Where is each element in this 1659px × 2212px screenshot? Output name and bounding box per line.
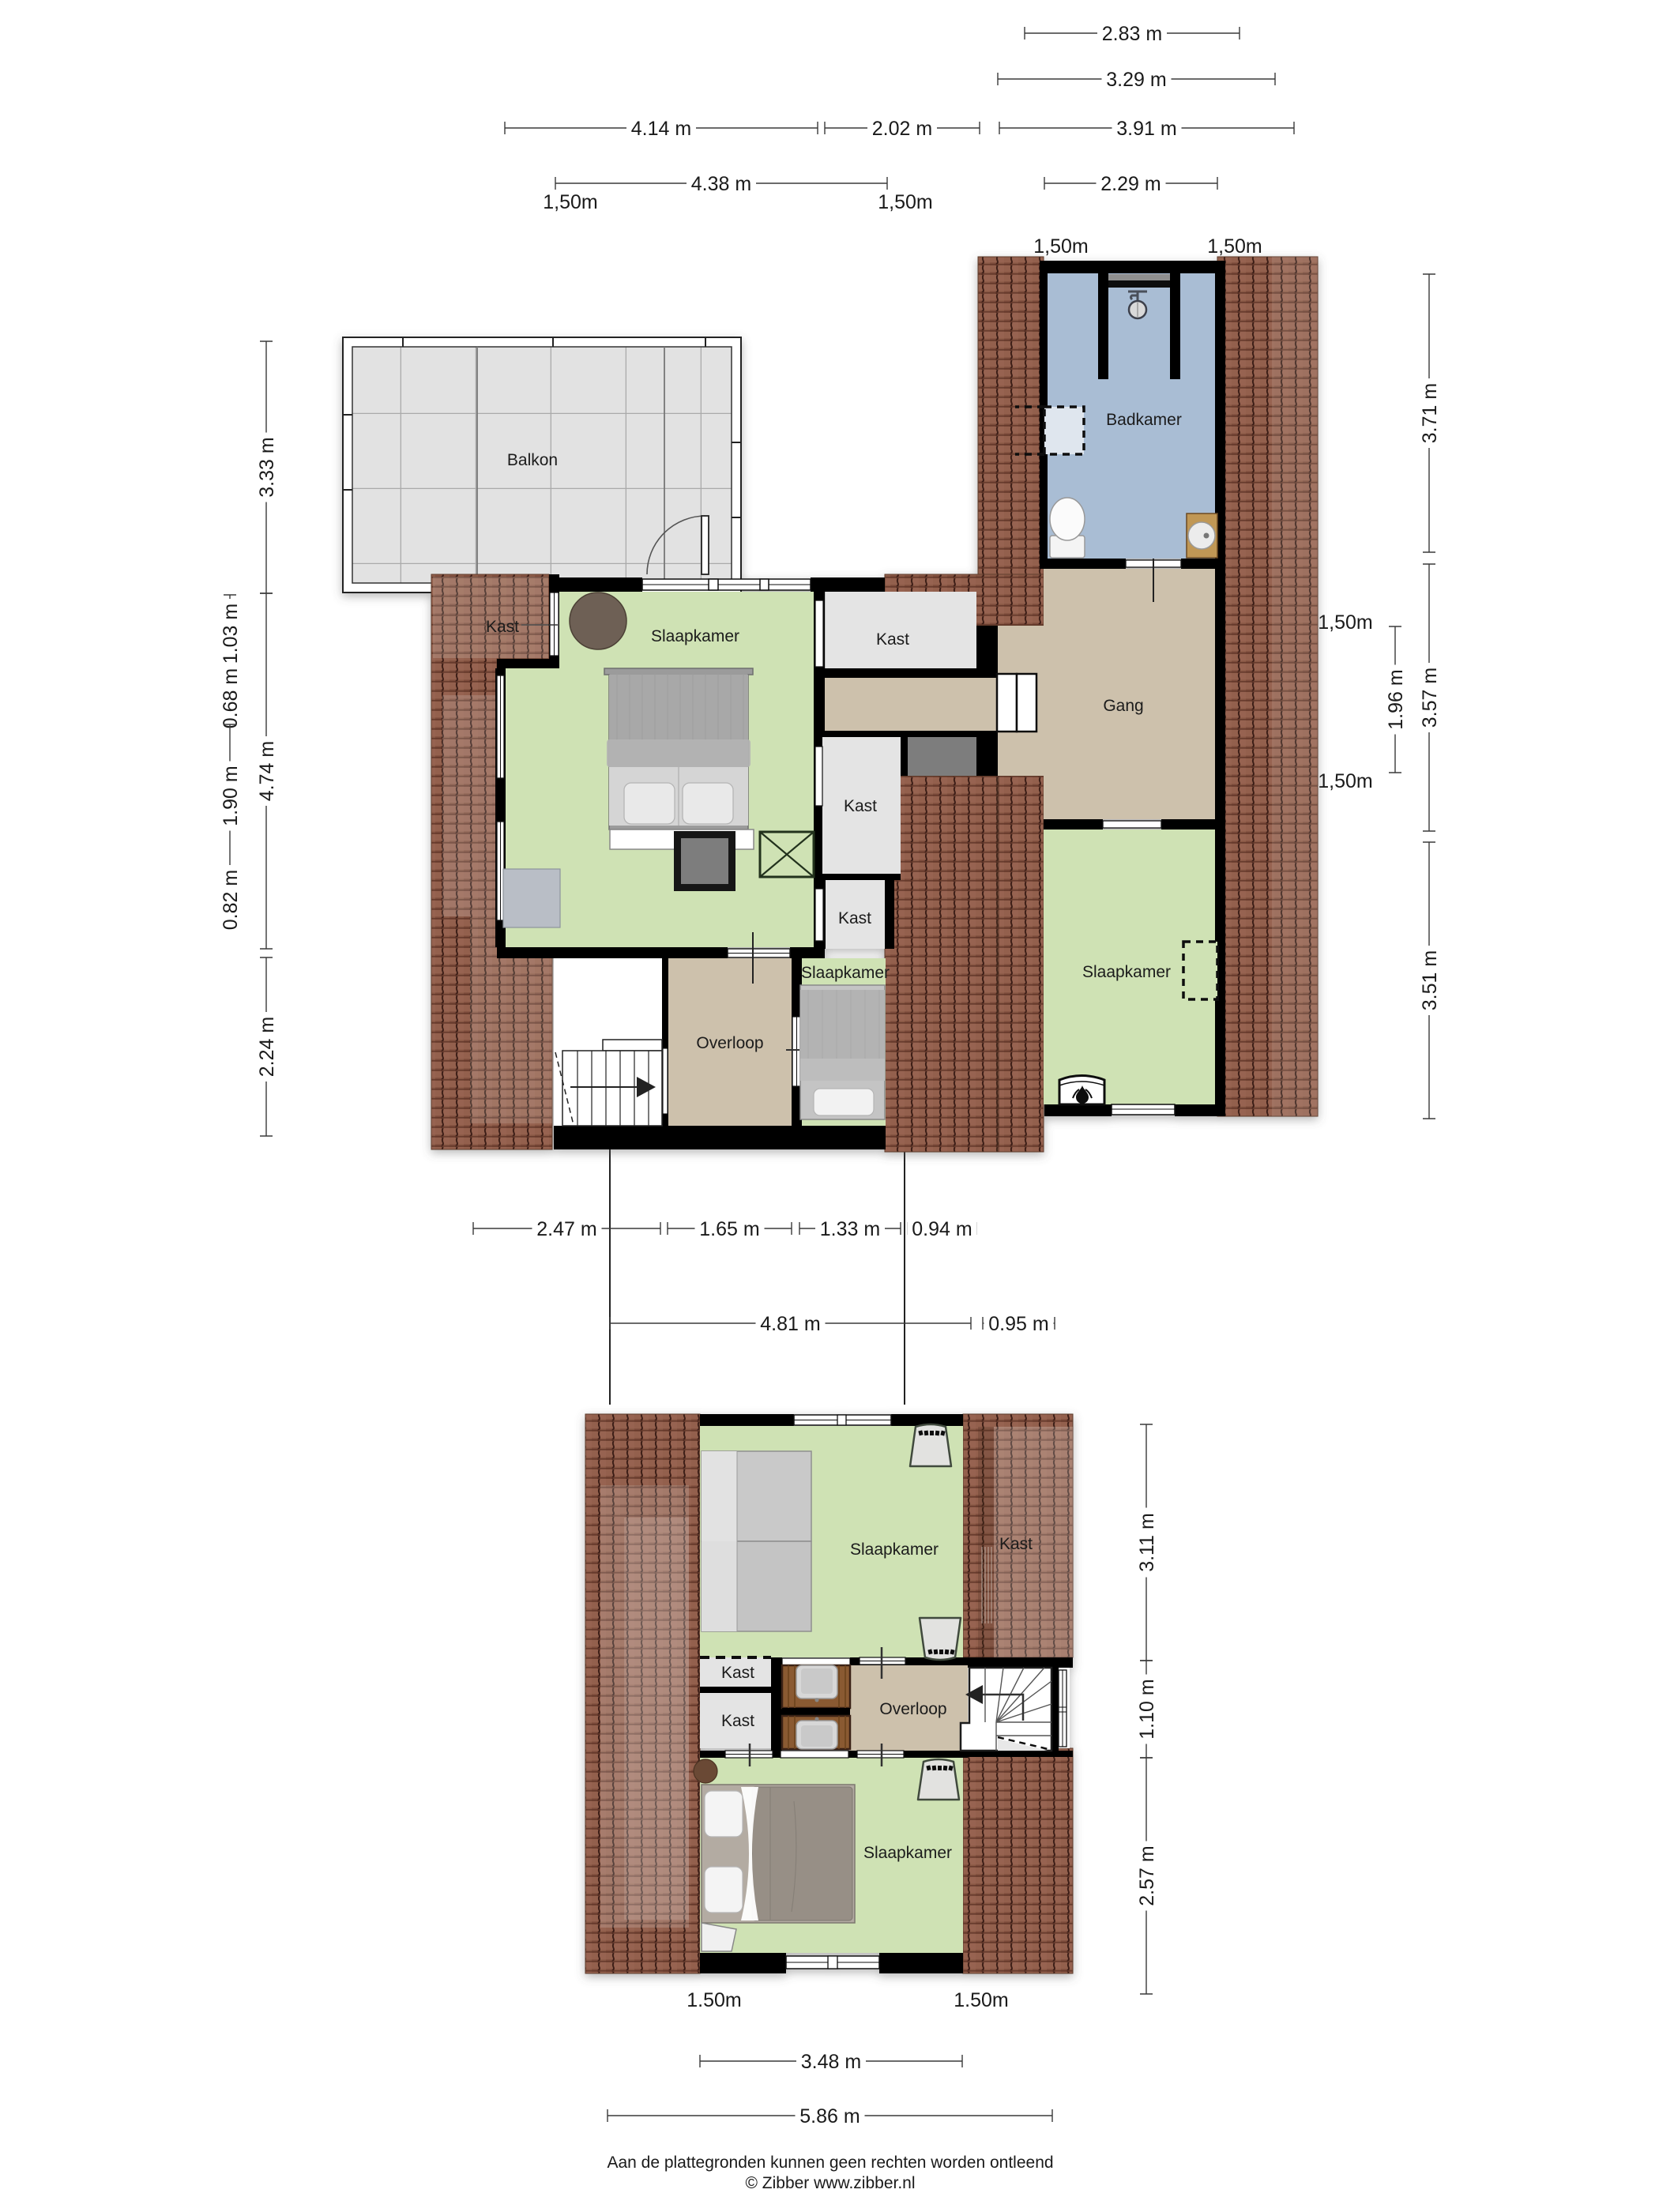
svg-text:Kast: Kast: [844, 797, 877, 815]
svg-text:Slaapkamer: Slaapkamer: [801, 964, 890, 982]
svg-text:1,50m: 1,50m: [1318, 611, 1372, 634]
svg-text:Slaapkamer: Slaapkamer: [863, 1844, 952, 1862]
svg-text:4.81 m: 4.81 m: [760, 1313, 820, 1335]
svg-text:Aan de plattegronden kunnen ge: Aan de plattegronden kunnen geen rechten…: [607, 2154, 1053, 2172]
svg-text:2.24 m: 2.24 m: [256, 1017, 278, 1077]
svg-text:Slaapkamer: Slaapkamer: [651, 627, 739, 645]
svg-text:1,50m: 1,50m: [1033, 235, 1088, 258]
svg-text:4.38 m: 4.38 m: [691, 173, 751, 195]
svg-text:Slaapkamer: Slaapkamer: [850, 1540, 939, 1559]
svg-text:1.90 m: 1.90 m: [220, 766, 242, 826]
svg-text:3.91 m: 3.91 m: [1116, 118, 1176, 140]
svg-text:Overloop: Overloop: [696, 1034, 763, 1052]
svg-text:3.57 m: 3.57 m: [1419, 668, 1441, 728]
svg-text:4.14 m: 4.14 m: [631, 118, 691, 140]
svg-text:© Zibber www.zibber.nl: © Zibber www.zibber.nl: [745, 2174, 915, 2192]
svg-text:3.33 m: 3.33 m: [256, 437, 278, 497]
svg-text:0.68 m: 0.68 m: [220, 668, 242, 728]
svg-text:1,50m: 1,50m: [543, 191, 597, 213]
svg-text:0.94 m: 0.94 m: [912, 1218, 972, 1240]
svg-text:5.86 m: 5.86 m: [799, 2105, 860, 2127]
svg-text:1.96 m: 1.96 m: [1385, 669, 1407, 729]
svg-text:Kast: Kast: [721, 1664, 754, 1682]
svg-text:2.83 m: 2.83 m: [1102, 23, 1162, 45]
svg-text:Kast: Kast: [486, 618, 519, 636]
svg-text:Balkon: Balkon: [507, 451, 558, 469]
svg-text:1.03 m: 1.03 m: [220, 604, 242, 664]
svg-text:Gang: Gang: [1103, 697, 1143, 715]
svg-text:1.10 m: 1.10 m: [1136, 1679, 1158, 1739]
svg-text:Slaapkamer: Slaapkamer: [1082, 963, 1171, 981]
svg-text:1,50m: 1,50m: [1318, 770, 1372, 792]
svg-text:3.48 m: 3.48 m: [801, 2051, 861, 2073]
svg-text:3.51 m: 3.51 m: [1419, 950, 1441, 1010]
svg-text:Kast: Kast: [999, 1535, 1033, 1553]
svg-text:1,50m: 1,50m: [878, 191, 932, 213]
svg-text:Kast: Kast: [838, 909, 871, 927]
svg-text:3.29 m: 3.29 m: [1106, 69, 1166, 91]
svg-text:3.71 m: 3.71 m: [1419, 383, 1441, 443]
svg-text:2.02 m: 2.02 m: [872, 118, 932, 140]
svg-text:0.95 m: 0.95 m: [988, 1313, 1048, 1335]
svg-text:2.57 m: 2.57 m: [1136, 1845, 1158, 1905]
svg-text:Badkamer: Badkamer: [1106, 411, 1182, 429]
svg-text:Kast: Kast: [876, 630, 909, 649]
svg-text:1.65 m: 1.65 m: [699, 1218, 759, 1240]
svg-text:2.47 m: 2.47 m: [536, 1218, 596, 1240]
svg-text:0.82 m: 0.82 m: [220, 870, 242, 930]
svg-text:Kast: Kast: [721, 1712, 754, 1730]
svg-text:1,50m: 1,50m: [1207, 235, 1262, 258]
svg-text:3.11 m: 3.11 m: [1136, 1513, 1158, 1572]
svg-text:4.74 m: 4.74 m: [256, 741, 278, 801]
svg-text:Overloop: Overloop: [879, 1700, 946, 1718]
svg-text:1.50m: 1.50m: [687, 1989, 741, 2011]
svg-text:2.29 m: 2.29 m: [1100, 173, 1161, 195]
svg-text:1.50m: 1.50m: [954, 1989, 1008, 2011]
svg-text:1.33 m: 1.33 m: [820, 1218, 880, 1240]
